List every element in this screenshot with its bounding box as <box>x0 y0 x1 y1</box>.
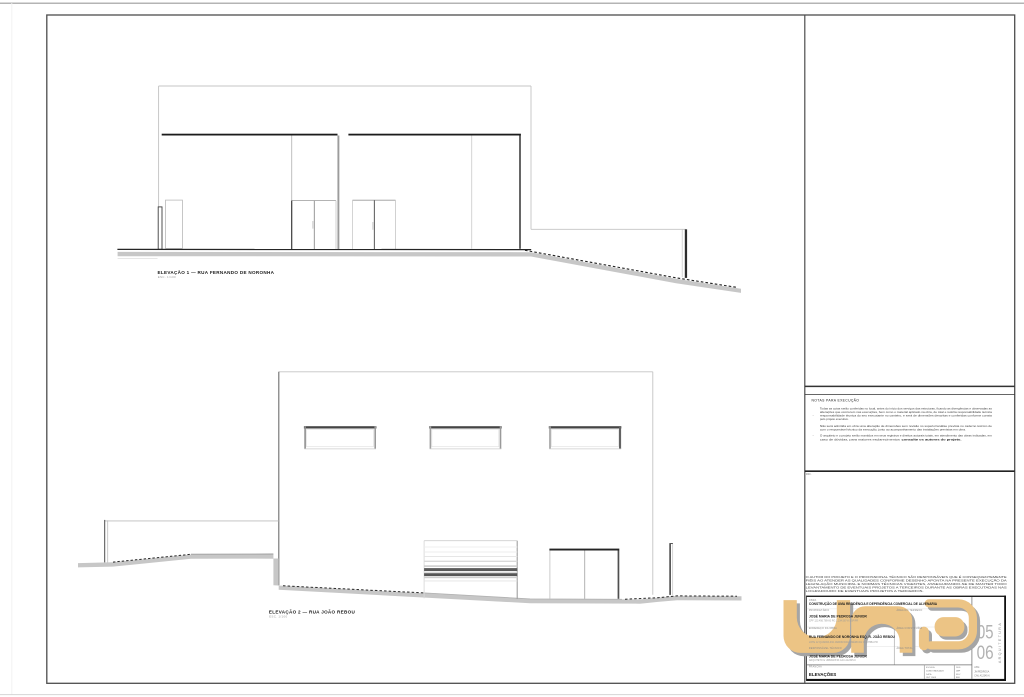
svg-text:CAU A12345-6: CAU A12345-6 <box>974 675 990 678</box>
svg-text:LOTE 12 QUADRA 034 JARDIM DA: LOTE 12 QUADRA 034 JARDIM DAS AMÉRICAS C… <box>809 641 878 644</box>
svg-text:ESCALA: ESCALA <box>926 666 935 669</box>
svg-text:ÁREA TOTAL: ÁREA TOTAL <box>897 647 914 650</box>
svg-text:JMP: JMP <box>956 670 961 672</box>
svg-text:ESC. 1/100: ESC. 1/100 <box>158 275 176 279</box>
svg-text:OUT 2003: OUT 2003 <box>926 677 937 679</box>
svg-text:COMO INDICADO: COMO INDICADO <box>926 669 944 672</box>
svg-text:NOTAS PARA EXECUÇÃO: NOTAS PARA EXECUÇÃO <box>812 397 860 402</box>
svg-text:ÁREA CONSTRUÍDA: ÁREA CONSTRUÍDA <box>897 627 923 630</box>
svg-text:-: - <box>813 434 814 438</box>
svg-text:DES.: DES. <box>956 667 961 669</box>
svg-text:ARQUITETO E URBANISTA CAU A12: ARQUITETO E URBANISTA CAU A12345-6 <box>809 659 856 662</box>
svg-text:PRANCHA: PRANCHA <box>809 665 822 668</box>
svg-text:ENDEREÇO DA OBRA: ENDEREÇO DA OBRA <box>809 627 837 630</box>
svg-text:06: 06 <box>977 642 994 664</box>
svg-text:RESPONSÁVEL TÉCNICO: RESPONSÁVEL TÉCNICO <box>809 647 842 650</box>
svg-text:consulte os autores do projeto: consulte os autores do projeto. <box>902 437 962 441</box>
svg-text:-: - <box>813 414 814 418</box>
svg-text:ASS.:: ASS.: <box>974 666 980 669</box>
svg-text:caso de dúvidas, para maiores: caso de dúvidas, para maiores esclarecim… <box>820 437 901 441</box>
svg-text:ELEVAÇÃO 1 — RUA FERNANDO DE N: ELEVAÇÃO 1 — RUA FERNANDO DE NORONHA <box>158 269 275 275</box>
svg-text:CPF 123.456.789-00 RG 1.234.5: CPF 123.456.789-00 RG 1.234.567-8 SSP/PR <box>809 619 859 622</box>
svg-text:REV.: REV. <box>956 674 961 676</box>
svg-text:JM PEDROSA: JM PEDROSA <box>974 670 989 673</box>
svg-text:JOSÉ MARIA DE PEDROSA JUNIOR: JOSÉ MARIA DE PEDROSA JUNIOR <box>809 654 868 659</box>
svg-text:com o responsável técnico da e: com o responsável técnico da execução, j… <box>820 427 966 431</box>
svg-text:LOGRADOURO DE EVENTUAIS PROJET: LOGRADOURO DE EVENTUAIS PROJETOS A TERCE… <box>806 589 924 593</box>
svg-text:ARQUITETURA: ARQUITETURA <box>998 622 1002 663</box>
svg-text:JOSÉ MARIA DE PEDROSA JUNIOR: JOSÉ MARIA DE PEDROSA JUNIOR <box>809 614 868 619</box>
svg-text:RUA FERNANDO DE NORONHA ESQ. R: RUA FERNANDO DE NORONHA ESQ. R. JOÃO REB… <box>809 634 896 639</box>
svg-text:PROPRIETÁRIO: PROPRIETÁRIO <box>809 609 829 612</box>
svg-text:CONSTRUÇÃO DE UMA RESIDÊNCIA E: CONSTRUÇÃO DE UMA RESIDÊNCIA E DEPENDÊNC… <box>809 601 938 606</box>
svg-text:R00 .: R00 . <box>806 473 812 476</box>
svg-text:ÁREA DO TERRENO: ÁREA DO TERRENO <box>897 609 923 612</box>
svg-text:ELEVAÇÕES: ELEVAÇÕES <box>809 671 836 677</box>
svg-text:ESC. 1/100: ESC. 1/100 <box>269 615 287 619</box>
svg-text:DATA: DATA <box>926 673 932 676</box>
svg-text:pelo projeto executivo.: pelo projeto executivo. <box>820 417 849 421</box>
